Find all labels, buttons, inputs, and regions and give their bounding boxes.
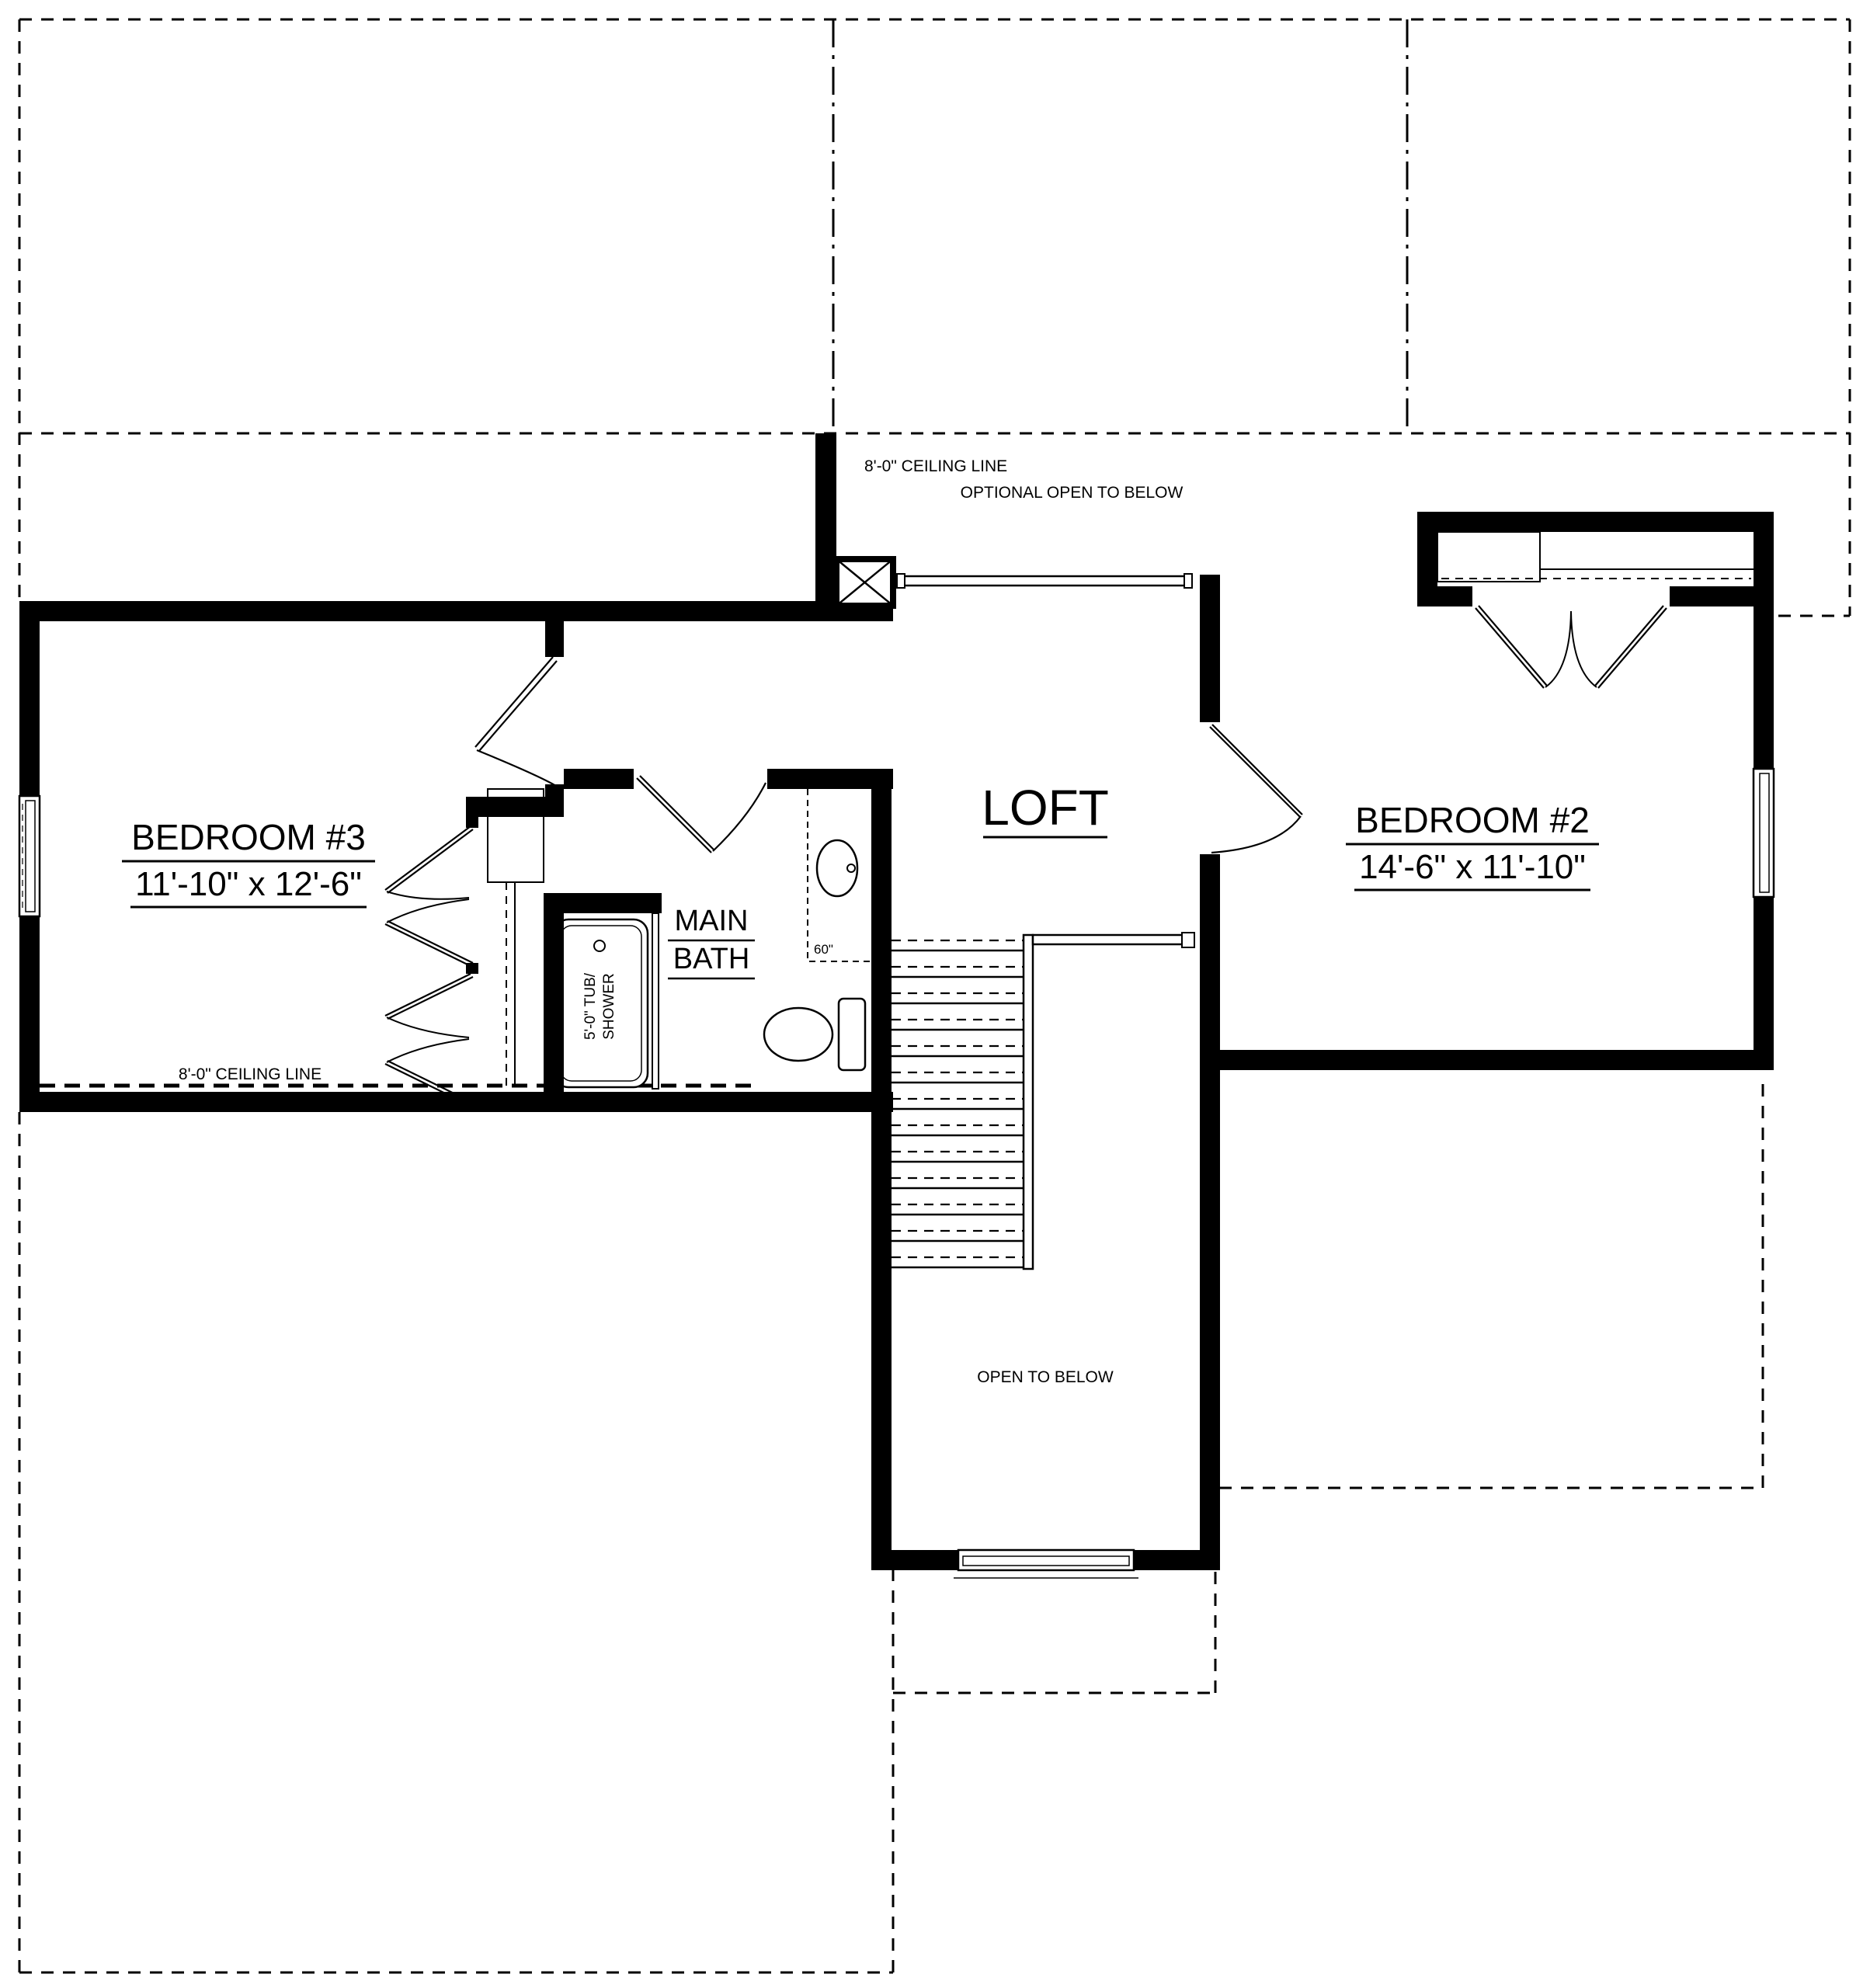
bedroom2-closet-interior [1437, 532, 1754, 582]
main-bath-label-line1: MAIN [675, 905, 749, 937]
bedroom3-name-label: BEDROOM #3 [131, 817, 366, 857]
bedroom2-name-label: BEDROOM #2 [1355, 800, 1590, 840]
stair-railing [1033, 933, 1194, 947]
bedroom3-door-jamb-upper [545, 621, 564, 657]
bedroom3-door [475, 657, 557, 786]
bedroom3-dims-label: 11'-10" x 12'-6" [135, 865, 362, 903]
railings [652, 574, 1194, 1089]
toilet [764, 999, 865, 1070]
stair-side-stringer [1024, 935, 1033, 1269]
bedroom2-west-wall-upper [1200, 575, 1220, 722]
floor-plan-drawing: 8'-0" CEILING LINE OPTIONAL OPEN TO BELO… [0, 0, 1870, 1988]
north-wall [19, 601, 893, 621]
open-to-below-label: OPEN TO BELOW [977, 1368, 1114, 1386]
bedroom2-east-wall-lower [1754, 897, 1774, 1070]
ceiling-line-left-label: 8'-0" CEILING LINE [179, 1065, 322, 1083]
tub-half-wall [652, 913, 659, 1089]
bedroom2-dims-label: 14'-6" x 11'-10" [1359, 848, 1586, 886]
bedroom2-closet-doors [1475, 606, 1667, 688]
roof-outline-dashed-lines [19, 19, 1850, 1972]
bath-north-wall-west [564, 769, 634, 789]
tub-alcove-north-wall [544, 893, 662, 913]
main-bath-label-line2: BATH [673, 943, 750, 975]
tub-label-line2: SHOWER [601, 973, 617, 1040]
bedroom3-closet-interior [488, 789, 544, 1087]
ceiling-line-top-label: 8'-0" CEILING LINE [864, 457, 1007, 475]
closet-jamb-top [466, 817, 478, 828]
bedroom2-closet-south-wall-west [1417, 586, 1472, 606]
bedroom3-window [19, 796, 40, 916]
stairwell-west-wall [871, 769, 892, 1570]
bedroom3-closet-bifold-doors [385, 826, 473, 1106]
open-below-west-wall [815, 433, 836, 606]
bedroom2-closet-south-wall-east [1670, 586, 1754, 606]
bedroom2-door [1210, 725, 1302, 853]
open-to-below-window [954, 1550, 1138, 1578]
bedroom3-west-wall-lower [19, 916, 40, 1112]
chimney [836, 559, 893, 606]
bedroom2-north-wall [1417, 512, 1774, 532]
loft-label: LOFT [982, 780, 1109, 836]
tub-label-line1: 5'-0" TUB/ [582, 972, 599, 1040]
bedroom2-east-wall-upper [1754, 512, 1774, 769]
bedroom2-west-wall-lower [1200, 854, 1220, 1570]
floor-plan-page: 8'-0" CEILING LINE OPTIONAL OPEN TO BELO… [0, 0, 1870, 1988]
vanity-width-label: 60" [814, 942, 833, 957]
bedroom3-door-jamb-lower [545, 784, 564, 817]
loft-railing [897, 574, 1192, 588]
roof-ridge-dash-dot-lines [833, 19, 1407, 433]
staircase [892, 935, 1033, 1269]
walls [19, 433, 1774, 1570]
bedroom2-south-wall [1200, 1050, 1774, 1070]
optional-open-to-below-label: OPTIONAL OPEN TO BELOW [961, 484, 1184, 502]
vanity-sink [808, 789, 871, 961]
bedroom3-west-wall-upper [19, 601, 40, 796]
bedroom2-window [1754, 769, 1774, 897]
main-bath-door [637, 776, 766, 853]
bedroom3-closet-north-wall [466, 797, 545, 817]
closet-tub-divider-wall [544, 893, 564, 1092]
open-below-south-wall-west [871, 1550, 958, 1570]
